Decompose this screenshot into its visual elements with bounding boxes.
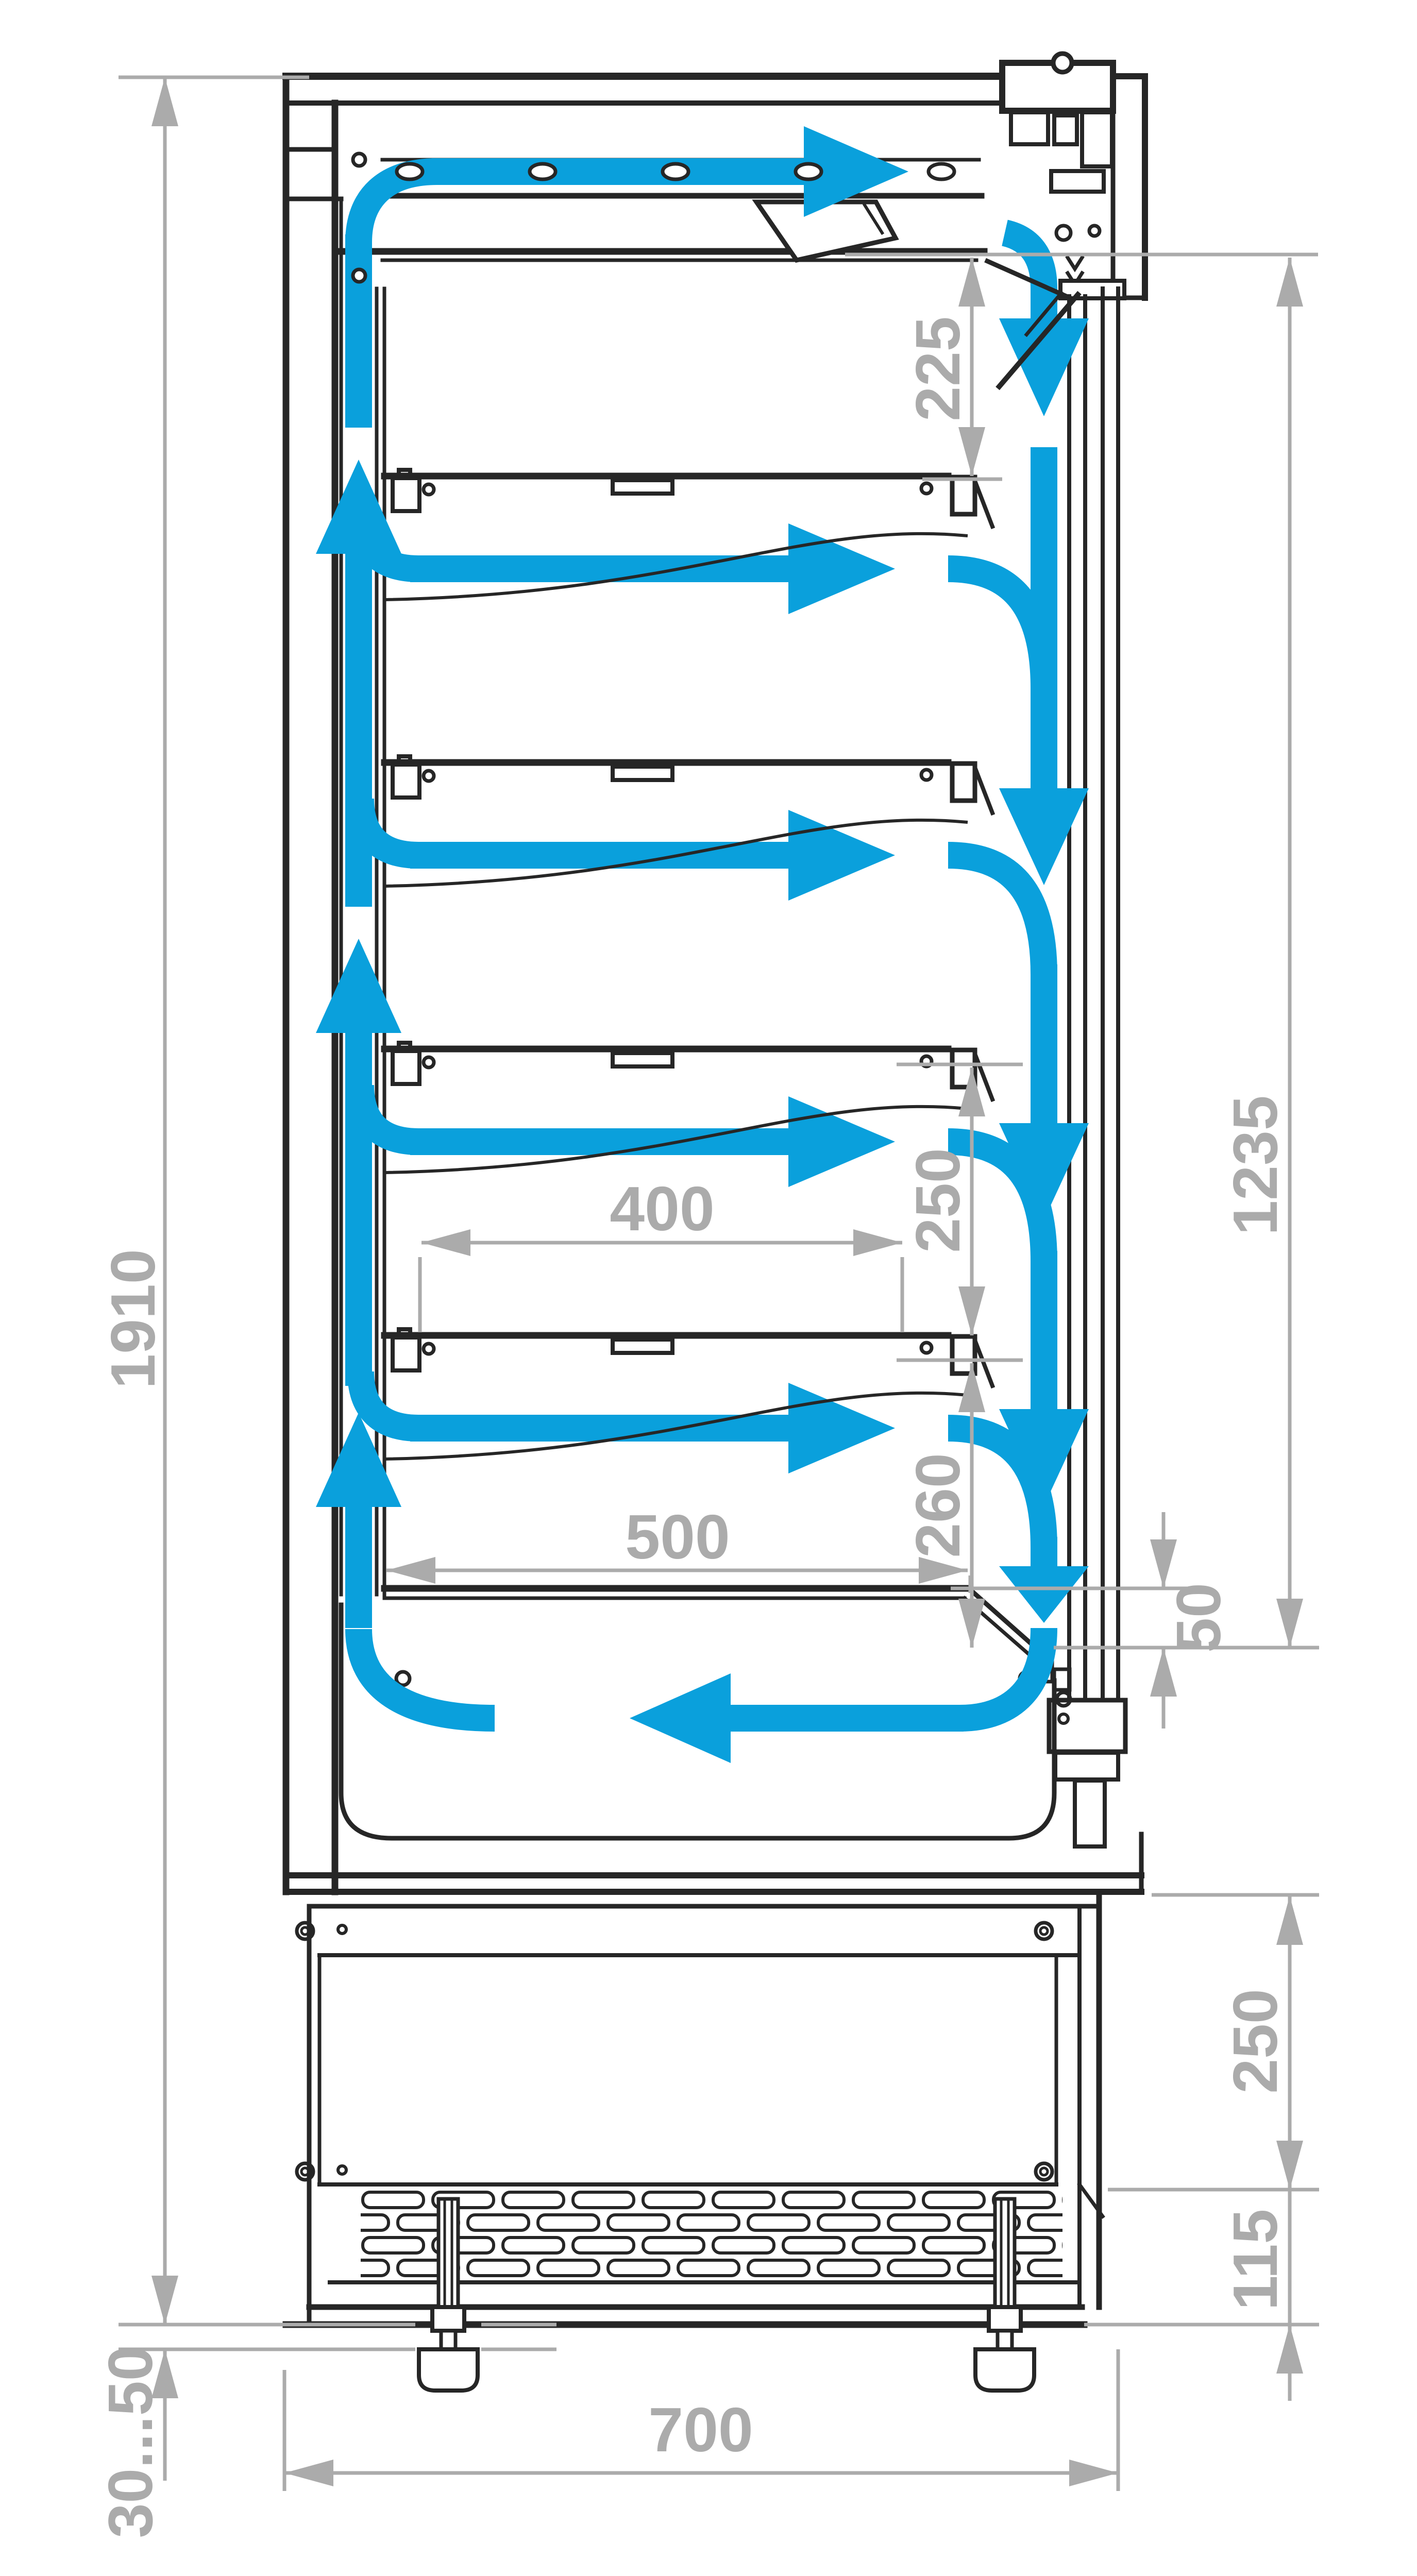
dimension-foot-range	[119, 2325, 556, 2481]
shelf-3	[384, 1043, 992, 1099]
left-arrow-icon	[386, 1557, 435, 1584]
dimension-shelf-depth	[420, 1229, 902, 1332]
cabinet-structure	[286, 54, 1145, 2325]
shelf-4	[384, 1329, 992, 1386]
down-arrow-icon	[1150, 1539, 1177, 1588]
cabinet-section-diagram: 1910 30...50 700 225 1235 250 260 400 50…	[0, 0, 1417, 2576]
dim-label-deck-depth: 500	[625, 1502, 730, 1572]
door-top-frame	[1002, 54, 1145, 298]
dim-label-opening-height: 1235	[1220, 1095, 1290, 1235]
down-arrow-icon	[999, 1566, 1089, 1623]
up-arrow-icon	[958, 1363, 985, 1412]
dim-label-return-gap: 50	[1163, 1583, 1234, 1653]
up-arrow-icon	[1276, 2325, 1303, 2374]
down-arrow-icon	[1276, 2141, 1303, 2190]
dim-label-shelf-depth: 400	[610, 1174, 715, 1244]
dim-label-shelf-gap: 250	[903, 1148, 973, 1253]
dim-label-bottom-gap: 260	[903, 1453, 973, 1558]
hinge-pin-icon	[1053, 54, 1072, 72]
right-arrow-icon	[919, 1557, 968, 1584]
shelf-1	[384, 470, 992, 527]
right-arrow-icon	[1069, 2460, 1118, 2486]
down-arrow-icon	[151, 2276, 178, 2325]
dimensions	[119, 77, 1319, 2491]
dim-label-overall-height: 1910	[98, 1249, 168, 1388]
dimension-overall-height	[119, 77, 309, 2325]
glass-door	[1049, 281, 1125, 1846]
dim-label-base-front-height: 250	[1220, 1989, 1290, 2094]
shelf-light-cables	[385, 534, 968, 1459]
up-arrow-icon	[958, 258, 985, 307]
up-arrow-icon	[1276, 258, 1303, 307]
right-arrow-icon	[788, 810, 895, 901]
ventilation-grille	[361, 2191, 1062, 2278]
shelf-2	[384, 756, 992, 813]
dim-label-grille-height: 115	[1220, 2209, 1290, 2311]
up-arrow-icon	[151, 77, 178, 126]
left-arrow-icon	[284, 2460, 333, 2486]
price-rail	[952, 764, 975, 801]
down-arrow-icon	[958, 1286, 985, 1335]
return-air-arrow	[359, 1628, 1044, 1763]
down-arrow-icon	[1276, 1599, 1303, 1648]
door-bottom-rail	[1049, 1700, 1125, 1752]
down-arrow-icon	[958, 427, 985, 476]
left-arrow-icon	[630, 1673, 731, 1763]
price-rail	[952, 477, 975, 514]
left-arrow-icon	[421, 1229, 470, 1256]
right-arrow-icon	[788, 523, 895, 614]
right-arrow-icon	[853, 1229, 902, 1256]
up-arrow-icon	[1150, 1648, 1177, 1697]
right-arrow-icon	[788, 1383, 895, 1473]
dim-label-foot-range: 30...50	[95, 2346, 165, 2538]
drawing-canvas: 1910 30...50 700 225 1235 250 260 400 50…	[0, 0, 1417, 2576]
up-arrow-icon	[316, 939, 401, 1033]
dim-label-canopy-gap: 225	[903, 316, 973, 421]
dim-label-overall-depth: 700	[648, 2395, 753, 2465]
dimension-opening-height	[1054, 258, 1319, 1648]
down-arrow-icon	[958, 1599, 985, 1648]
up-arrow-icon	[1276, 1896, 1303, 1945]
right-arrow-icon	[788, 1096, 895, 1187]
